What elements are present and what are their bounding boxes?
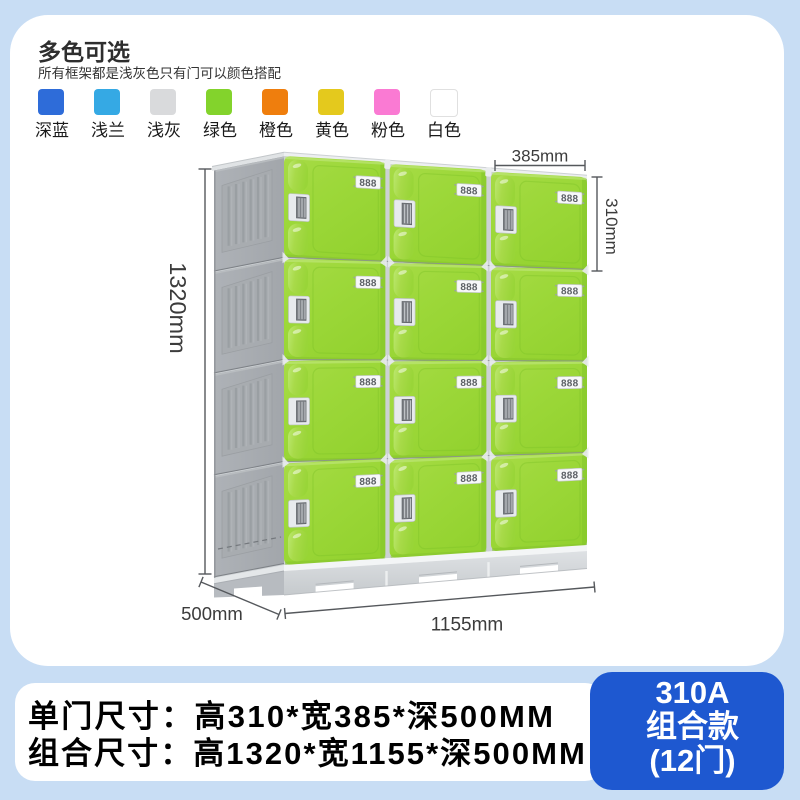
svg-text:385mm: 385mm <box>512 147 569 166</box>
svg-text:888: 888 <box>359 278 377 289</box>
svg-text:500mm: 500mm <box>181 603 243 624</box>
svg-text:888: 888 <box>561 470 579 482</box>
svg-text:888: 888 <box>460 378 478 389</box>
svg-text:888: 888 <box>561 378 579 389</box>
svg-text:888: 888 <box>561 193 579 205</box>
svg-text:1320mm: 1320mm <box>165 262 191 353</box>
svg-text:888: 888 <box>460 282 478 293</box>
svg-text:1155mm: 1155mm <box>431 615 504 636</box>
svg-text:888: 888 <box>359 178 377 190</box>
svg-text:888: 888 <box>460 185 478 197</box>
svg-text:888: 888 <box>460 473 478 485</box>
svg-text:310mm: 310mm <box>602 198 621 255</box>
svg-text:888: 888 <box>359 377 377 388</box>
svg-text:888: 888 <box>359 476 377 488</box>
svg-text:888: 888 <box>561 286 579 297</box>
